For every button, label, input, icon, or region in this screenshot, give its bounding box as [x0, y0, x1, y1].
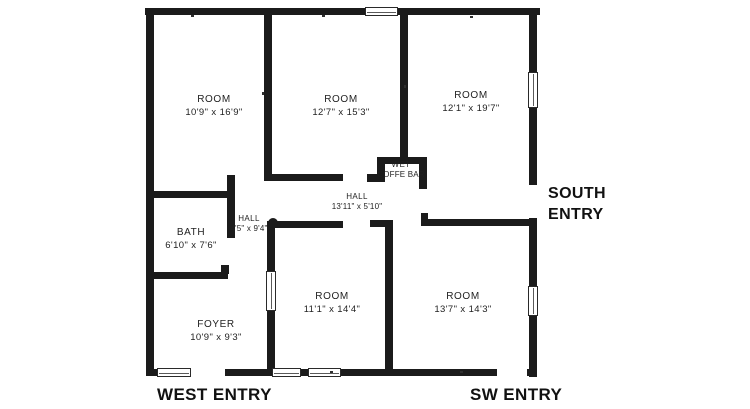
window-bottom-foyer: [157, 368, 191, 377]
wall-tick-mark: [262, 92, 264, 95]
room-label-bottom-right: ROOM 13'7" x 14'3": [434, 290, 491, 316]
room-name: HALL: [230, 214, 267, 224]
room-dimensions: 13'7" x 14'3": [434, 304, 491, 316]
wall-tick-mark: [404, 85, 406, 88]
room-label-top-left: ROOM 10'9" x 16'9": [185, 93, 242, 119]
wall-bath-bottom: [146, 272, 228, 279]
wall-divider-bottom-rooms: [385, 221, 393, 376]
west-entry-label: WEST ENTRY: [157, 386, 272, 403]
wall-exterior-bottom-right-foot: [527, 369, 537, 376]
room-name: HALL: [332, 192, 383, 202]
room-name: WET: [377, 160, 425, 170]
room-name: ROOM: [442, 89, 499, 103]
room-label-top-right: ROOM 12'1" x 19'7": [442, 89, 499, 115]
room-name: ROOM: [312, 93, 369, 107]
wall-bottomleft-room-top: [273, 221, 343, 228]
south-entry-line1: SOUTH: [548, 183, 606, 204]
wall-tick-mark: [470, 16, 473, 18]
window-bottom-room-left-2: [308, 368, 341, 377]
room-dimensions: 10'9" x 16'9": [185, 107, 242, 119]
wall-bath-top: [150, 191, 235, 198]
room-dimensions: 10'9" x 9'3": [190, 332, 242, 344]
wall-bath-bottom-tick: [221, 265, 229, 274]
wall-hall-bottom-east: [421, 219, 537, 226]
sw-entry-label: SW ENTRY: [470, 386, 562, 403]
room-name: ROOM: [304, 290, 361, 304]
window-right-lower: [528, 286, 538, 316]
door-pivot-dot: [268, 218, 278, 228]
room-dimensions: 4'5" x 9'4": [230, 224, 267, 234]
wall-tick-mark: [460, 371, 463, 373]
room-dimensions: 11'1" x 14'4": [304, 304, 361, 316]
wall-hall-top-west: [264, 174, 343, 181]
wall-hall-bottom-east-tick: [421, 213, 428, 220]
wall-exterior-bottom-main: [225, 369, 497, 376]
room-name: ROOM: [434, 290, 491, 304]
room-label-bottom-left: ROOM 11'1" x 14'4": [304, 290, 361, 316]
room-name: ROOM: [185, 93, 242, 107]
room-dimensions: 6'10" x 7'6": [165, 240, 217, 252]
room-label-top-middle: ROOM 12'7" x 15'3": [312, 93, 369, 119]
room-dimensions: 13'11" x 5'10": [332, 202, 383, 212]
bath-label: BATH 6'10" x 7'6": [165, 226, 217, 252]
wall-divider-topleft-topmid: [264, 14, 272, 181]
room-dimensions: 12'1" x 19'7": [442, 103, 499, 115]
window-foyer-room-wall: [266, 271, 276, 311]
wet-coffee-bar-label: WET COFFE BAR: [377, 160, 425, 180]
window-bottom-room-left-1: [272, 368, 301, 377]
wall-tick-mark: [191, 15, 194, 17]
floorplan-canvas: ROOM 10'9" x 16'9" ROOM 12'7" x 15'3" RO…: [0, 0, 750, 409]
hall-small-label: HALL 4'5" x 9'4": [230, 214, 267, 234]
room-name-line2: COFFE BAR: [377, 170, 425, 180]
hall-main-label: HALL 13'11" x 5'10": [332, 192, 383, 212]
room-name: BATH: [165, 226, 217, 240]
window-right-upper: [528, 72, 538, 108]
wall-tick-mark: [322, 15, 325, 17]
room-dimensions: 12'7" x 15'3": [312, 107, 369, 119]
south-entry-label: SOUTH ENTRY: [548, 183, 606, 225]
wall-exterior-top: [145, 8, 540, 15]
window-top-wall: [365, 7, 398, 16]
wall-divider-bottom-rooms-flange: [370, 220, 393, 227]
south-entry-line2: ENTRY: [548, 204, 606, 225]
foyer-label: FOYER 10'9" x 9'3": [190, 318, 242, 344]
room-name: FOYER: [190, 318, 242, 332]
wall-tick-mark: [330, 371, 333, 373]
